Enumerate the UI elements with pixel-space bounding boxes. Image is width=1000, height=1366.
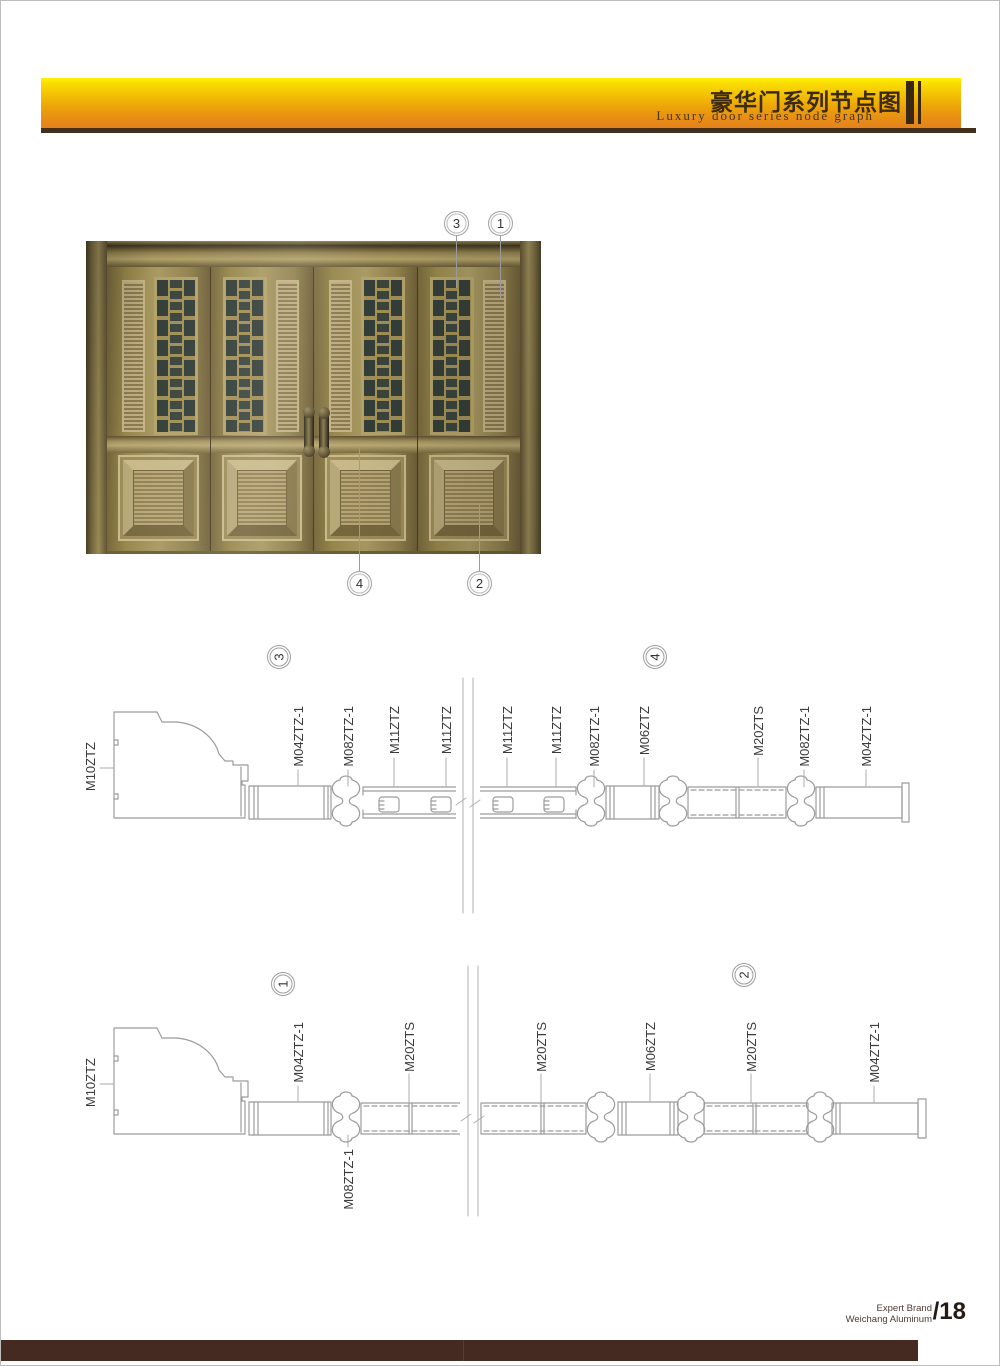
jamb-profile <box>114 712 248 818</box>
banner-accent-bar-thin <box>918 81 921 124</box>
footer-bar <box>1 1340 918 1361</box>
connector-m08ztz-1 <box>332 1092 359 1142</box>
part-label: M08ZTZ-1 <box>587 706 602 767</box>
louver-panel <box>329 280 352 432</box>
door-frame-right <box>520 241 541 554</box>
door-leaf-2 <box>211 267 314 551</box>
door-leaf-4 <box>418 267 521 551</box>
louver-panel <box>276 280 299 432</box>
part-label-m10ztz: M10ZTZ <box>83 742 98 791</box>
part-label: M11ZTZ <box>439 706 454 754</box>
callout-leader-3 <box>456 234 457 288</box>
door-frame-top <box>86 241 541 267</box>
footer-brand-line2: Weichang Aluminum <box>846 1314 932 1325</box>
louver-panel <box>483 280 506 432</box>
footer-brand-line1: Expert Brand <box>846 1303 932 1314</box>
part-label: M06ZTZ <box>643 1022 658 1071</box>
section-circle-1: 1 <box>276 980 291 987</box>
door-photo <box>86 241 541 554</box>
door-handle-right <box>319 409 329 456</box>
part-label: M08ZTZ-1 <box>797 706 812 767</box>
door-mid-rail <box>211 436 314 453</box>
part-label: M04ZTZ-1 <box>867 1022 882 1083</box>
photo-callout-2: 2 <box>467 571 492 596</box>
part-label: M06ZTZ <box>637 706 652 755</box>
part-label: M08ZTZ-1 <box>341 706 356 767</box>
door-mid-rail <box>418 436 521 453</box>
profile-m06ztz <box>618 1102 678 1135</box>
part-label: M20ZTS <box>751 706 766 756</box>
profile-m04ztz-1 <box>249 1102 331 1135</box>
header-banner-rule <box>41 128 976 133</box>
profile-m04ztz-1 <box>249 786 331 819</box>
page-number: /18 <box>933 1298 966 1326</box>
door-handle-left <box>304 408 314 455</box>
part-label-m10ztz: M10ZTZ <box>83 1058 98 1107</box>
part-label: M11ZTZ <box>549 706 564 754</box>
banner-accent-bar-thick <box>906 81 914 124</box>
lattice-glass-panel <box>223 277 267 435</box>
part-label: M11ZTZ <box>387 706 402 754</box>
door-leaf-1 <box>107 267 210 551</box>
lattice-glass-panel <box>154 277 198 435</box>
door-bottom-panel <box>222 455 303 541</box>
part-label: M04ZTZ-1 <box>291 706 306 767</box>
catalog-page: 豪华门系列节点图 Luxury door series node graph <box>0 0 1000 1366</box>
lattice-glass-panel <box>430 277 474 435</box>
profile-m20zts <box>688 787 786 818</box>
door-bottom-panel <box>118 455 199 541</box>
part-label: M11ZTZ <box>500 706 515 754</box>
part-label: M20ZTS <box>534 1022 549 1072</box>
photo-callout-1: 1 <box>488 211 513 236</box>
profile-m04ztz-1-end <box>816 787 902 818</box>
profile-m20zts <box>481 1103 586 1134</box>
door-bottom-panel <box>429 455 510 541</box>
photo-callout-4: 4 <box>347 571 372 596</box>
section-circle-3: 3 <box>272 653 287 660</box>
section-circle-2: 2 <box>737 971 752 978</box>
door-bottom-panel <box>325 455 406 541</box>
jamb-profile <box>114 1028 248 1134</box>
door-mid-rail <box>107 436 210 453</box>
part-label: M04ZTZ-1 <box>859 706 874 767</box>
door-frame-left <box>86 241 107 554</box>
callout-leader-4 <box>359 446 360 572</box>
footer-brand: Expert Brand Weichang Aluminum <box>846 1303 932 1325</box>
callout-leader-1 <box>500 234 501 298</box>
profile-m04ztz-1-end <box>832 1103 918 1134</box>
louver-panel <box>122 280 145 432</box>
connector-m08ztz-1 <box>332 776 359 826</box>
lattice-glass-panel <box>361 277 405 435</box>
footer-bar-divider <box>463 1340 464 1361</box>
node-diagram-bottom: 1 2 <box>1 941 1000 1231</box>
door-leaf-3 <box>314 267 417 551</box>
part-label: M20ZTS <box>744 1022 759 1072</box>
part-label: M20ZTS <box>402 1022 417 1072</box>
node-diagram-top: 3 4 <box>1 631 1000 926</box>
photo-callout-3: 3 <box>444 211 469 236</box>
page-title-english: Luxury door series node graph <box>656 108 874 124</box>
callout-leader-2 <box>479 503 480 572</box>
part-label: M04ZTZ-1 <box>291 1022 306 1083</box>
part-label-below: M08ZTZ-1 <box>341 1149 356 1210</box>
section-circle-4: 4 <box>648 653 663 660</box>
